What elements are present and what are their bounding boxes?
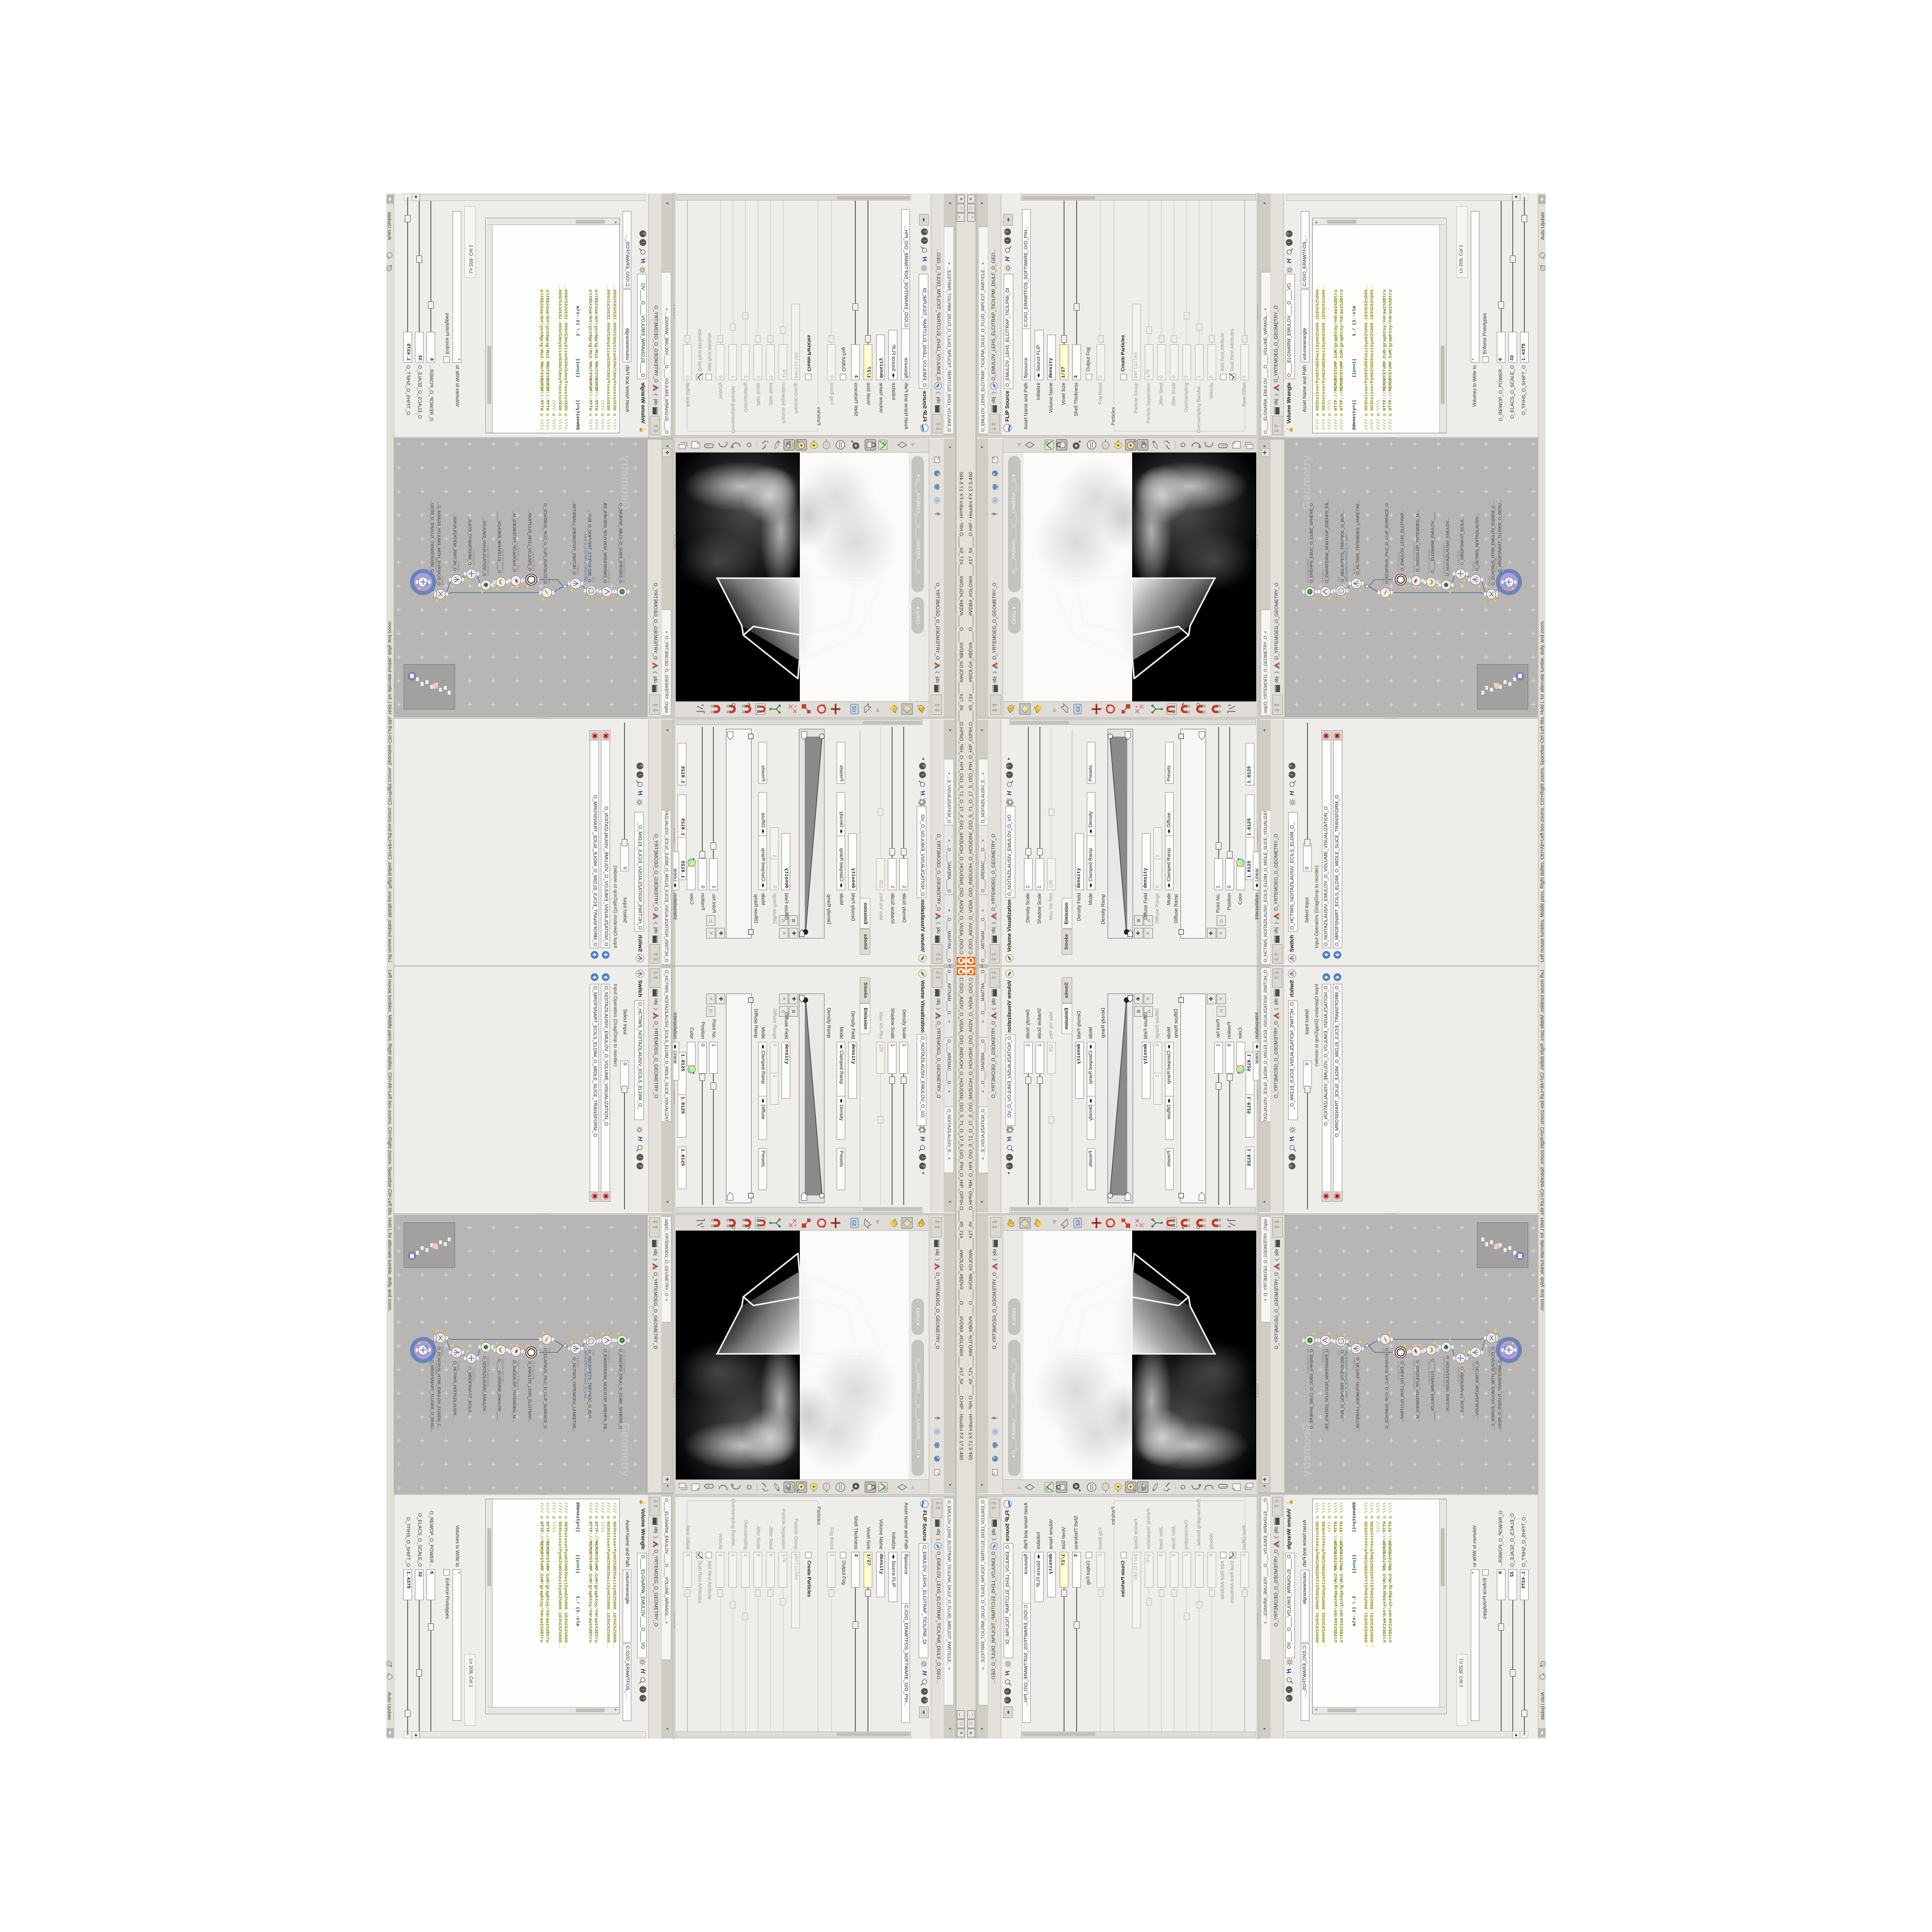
svg-text:O_MROFSNART_TLUSER_O_RESU...: O_MROFSNART_TLUSER_O_RESU... bbox=[430, 500, 435, 572]
svg-text:O_JBO.81PETS_TREVNOC_O_BUS...: O_JBO.81PETS_TREVNOC_O_BUS... bbox=[587, 510, 592, 582]
svg-text:O____ELGNARW_EMULOV____: O____ELGNARW_EMULOV____ bbox=[497, 511, 502, 573]
svg-text:O____ELGNARW_EMULOV____: O____ELGNARW_EMULOV____ bbox=[497, 1359, 502, 1421]
svg-text:O_SNOGILOP_YRTEMOEG_M...: O_SNOGILOP_YRTEMOEG_M... bbox=[512, 510, 517, 572]
svg-text:O____ELGNARW_EMULOV____: O____ELGNARW_EMULOV____ bbox=[1430, 511, 1435, 573]
svg-text:CZ: CZ bbox=[852, 706, 856, 712]
svg-text:O_EMARFERIW_NOGYLOP_EREHPS_EB.: O_EMARFERIW_NOGYLOP_EREHPS_EB... bbox=[603, 1349, 608, 1433]
svg-text:O_EMULOV_LEHS_ELCITRAP...: O_EMULOV_LEHS_ELCITRAP... bbox=[527, 510, 532, 571]
svg-text:JBO.81PETS.TRPGLS_O_SSU...: JBO.81PETS.TRPGLS_O_SSU... bbox=[583, 531, 587, 582]
svg-text:O_EREHPS_EBUC_O_CUBE_SPHERE_O: O_EREHPS_EBUC_O_CUBE_SPHERE_O bbox=[1309, 503, 1314, 583]
svg-text:O_HCTIWS_NOITAZILAUSIV...: O_HCTIWS_NOITAZILAUSIV... bbox=[453, 513, 457, 571]
svg-text:O_HCTIWS_YRTEMOEG_LANRETXE...: O_HCTIWS_YRTEMOEG_LANRETXE... bbox=[1355, 500, 1360, 575]
svg-text:O_MROFSNART_TLUSER_O_RESU...: O_MROFSNART_TLUSER_O_RESU... bbox=[1497, 1360, 1502, 1432]
svg-text:JBO.81PETS.TRPGLS_O_SSU...: JBO.81PETS.TRPGLS_O_SSU... bbox=[1345, 1350, 1349, 1401]
svg-text:O_ECAFRUS_PILC_O_CLIP_SURFACE_: O_ECAFRUS_PILC_O_CLIP_SURFACE_O bbox=[1384, 1348, 1389, 1429]
svg-text:O_EREHPS_EBUC_O_CUBE_SPHERE_O: O_EREHPS_EBUC_O_CUBE_SPHERE_O bbox=[618, 503, 623, 583]
svg-text:O_SNOGILOP_YRTEMOEG_M...: O_SNOGILOP_YRTEMOEG_M... bbox=[1415, 510, 1420, 572]
svg-text:O_NOITAZILAUSIV_EMULOV...: O_NOITAZILAUSIV_EMULOV... bbox=[1445, 518, 1450, 576]
svg-text:O_HCTIWS_YRTEMOEG_LANRETXE...: O_HCTIWS_YRTEMOEG_LANRETXE... bbox=[572, 500, 577, 575]
svg-text:O_EREHPS_EBUC_O_CUBE_SPHERE_O: O_EREHPS_EBUC_O_CUBE_SPHERE_O bbox=[618, 1349, 623, 1429]
svg-text:O_MROFSNART_ECILS...: O_MROFSNART_ECILS... bbox=[1460, 1367, 1464, 1416]
svg-text:O_HCTIWS_NOITAZILAUSIV...: O_HCTIWS_NOITAZILAUSIV... bbox=[1475, 513, 1479, 571]
svg-text:O_JBO.81PETS_TREVNOC_O_BUS...: O_JBO.81PETS_TREVNOC_O_BUS... bbox=[1340, 510, 1345, 582]
svg-text:O_SNOGILOP_YRTEMOEG_M...: O_SNOGILOP_YRTEMOEG_M... bbox=[1415, 1360, 1420, 1422]
svg-text:O_MROFSNART_TLUSER_O_RESU...: O_MROFSNART_TLUSER_O_RESU... bbox=[430, 1360, 435, 1432]
svg-text:O_ECAFRUS_PILC_O_CLIP_SURFACE_: O_ECAFRUS_PILC_O_CLIP_SURFACE_O bbox=[1384, 503, 1389, 584]
svg-text:O_NOITAZILAUSIV_EMULOV...: O_NOITAZILAUSIV_EMULOV... bbox=[482, 1356, 487, 1414]
svg-text:CZ: CZ bbox=[1076, 1220, 1080, 1226]
svg-text:O_ECAFRUS_HTIW_EMULOV_EGREM_C.: O_ECAFRUS_HTIW_EMULOV_EGREM_C... bbox=[437, 502, 441, 585]
svg-text:O_MROFSNART_TLUSER_O_RESU...: O_MROFSNART_TLUSER_O_RESU... bbox=[1497, 500, 1502, 572]
svg-text:O_EMULOV_LEHS_ELCITRAP...: O_EMULOV_LEHS_ELCITRAP... bbox=[527, 1361, 532, 1422]
svg-text:O_ECAFRUS_HTIW_EMULOV_EGREM_C.: O_ECAFRUS_HTIW_EMULOV_EGREM_C... bbox=[1491, 502, 1495, 585]
svg-text:O_ECAFRUS_HTIW_EMULOV_EGREM_C.: O_ECAFRUS_HTIW_EMULOV_EGREM_C... bbox=[1491, 1347, 1495, 1430]
svg-text:O_EMULOV_LEHS_ELCITRAP...: O_EMULOV_LEHS_ELCITRAP... bbox=[1400, 510, 1405, 571]
svg-text:O_JBO.81PETS_TREVNOC_O_BUS...: O_JBO.81PETS_TREVNOC_O_BUS... bbox=[1340, 1350, 1345, 1422]
svg-text:JBO.81PETS.TRPGLS_O_SSU...: JBO.81PETS.TRPGLS_O_SSU... bbox=[1345, 531, 1349, 582]
svg-text:O_EMARFERIW_NOGYLOP_EREHPS_EB.: O_EMARFERIW_NOGYLOP_EREHPS_EB... bbox=[603, 499, 608, 583]
svg-text:CZ: CZ bbox=[1076, 706, 1080, 712]
svg-text:O_MROFSNART_ECILS...: O_MROFSNART_ECILS... bbox=[468, 1367, 472, 1416]
svg-text:O_SNOGILOP_YRTEMOEG_M...: O_SNOGILOP_YRTEMOEG_M... bbox=[512, 1360, 517, 1422]
svg-text:O_EMARFERIW_NOGYLOP_EREHPS_EB.: O_EMARFERIW_NOGYLOP_EREHPS_EB... bbox=[1324, 1349, 1329, 1433]
svg-text:O_NOITAZILAUSIV_EMULOV...: O_NOITAZILAUSIV_EMULOV... bbox=[482, 518, 487, 576]
svg-text:CZ: CZ bbox=[852, 1220, 856, 1226]
svg-text:O_MROFSNART_ECILS...: O_MROFSNART_ECILS... bbox=[468, 516, 472, 565]
svg-text:O_NOITAZILAUSIV_EMULOV...: O_NOITAZILAUSIV_EMULOV... bbox=[1445, 1356, 1450, 1414]
svg-text:O_HCTIWS_NOITAZILAUSIV...: O_HCTIWS_NOITAZILAUSIV... bbox=[453, 1361, 457, 1419]
svg-text:JBO.81PETS.TRPGLS_O_SSU...: JBO.81PETS.TRPGLS_O_SSU... bbox=[583, 1350, 587, 1401]
svg-text:O_ECAFRUS_PILC_O_CLIP_SURFACE_: O_ECAFRUS_PILC_O_CLIP_SURFACE_O bbox=[543, 503, 548, 584]
svg-text:O_MROFSNART_ECILS...: O_MROFSNART_ECILS... bbox=[1460, 516, 1464, 565]
svg-text:O_ECAFRUS_HTIW_EMULOV_EGREM_C.: O_ECAFRUS_HTIW_EMULOV_EGREM_C... bbox=[437, 1347, 441, 1430]
svg-text:O_EMULOV_LEHS_ELCITRAP...: O_EMULOV_LEHS_ELCITRAP... bbox=[1400, 1361, 1405, 1422]
svg-text:O_HCTIWS_YRTEMOEG_LANRETXE...: O_HCTIWS_YRTEMOEG_LANRETXE... bbox=[1355, 1357, 1360, 1432]
svg-text:O_EREHPS_EBUC_O_CUBE_SPHERE_O: O_EREHPS_EBUC_O_CUBE_SPHERE_O bbox=[1309, 1349, 1314, 1429]
svg-text:O_JBO.81PETS_TREVNOC_O_BUS...: O_JBO.81PETS_TREVNOC_O_BUS... bbox=[587, 1350, 592, 1422]
svg-text:O_HCTIWS_NOITAZILAUSIV...: O_HCTIWS_NOITAZILAUSIV... bbox=[1475, 1361, 1479, 1419]
svg-text:O____ELGNARW_EMULOV____: O____ELGNARW_EMULOV____ bbox=[1430, 1359, 1435, 1421]
svg-text:O_HCTIWS_YRTEMOEG_LANRETXE...: O_HCTIWS_YRTEMOEG_LANRETXE... bbox=[572, 1357, 577, 1432]
svg-text:O_EMARFERIW_NOGYLOP_EREHPS_EB.: O_EMARFERIW_NOGYLOP_EREHPS_EB... bbox=[1324, 499, 1329, 583]
svg-text:O_ECAFRUS_PILC_O_CLIP_SURFACE_: O_ECAFRUS_PILC_O_CLIP_SURFACE_O bbox=[543, 1348, 548, 1429]
